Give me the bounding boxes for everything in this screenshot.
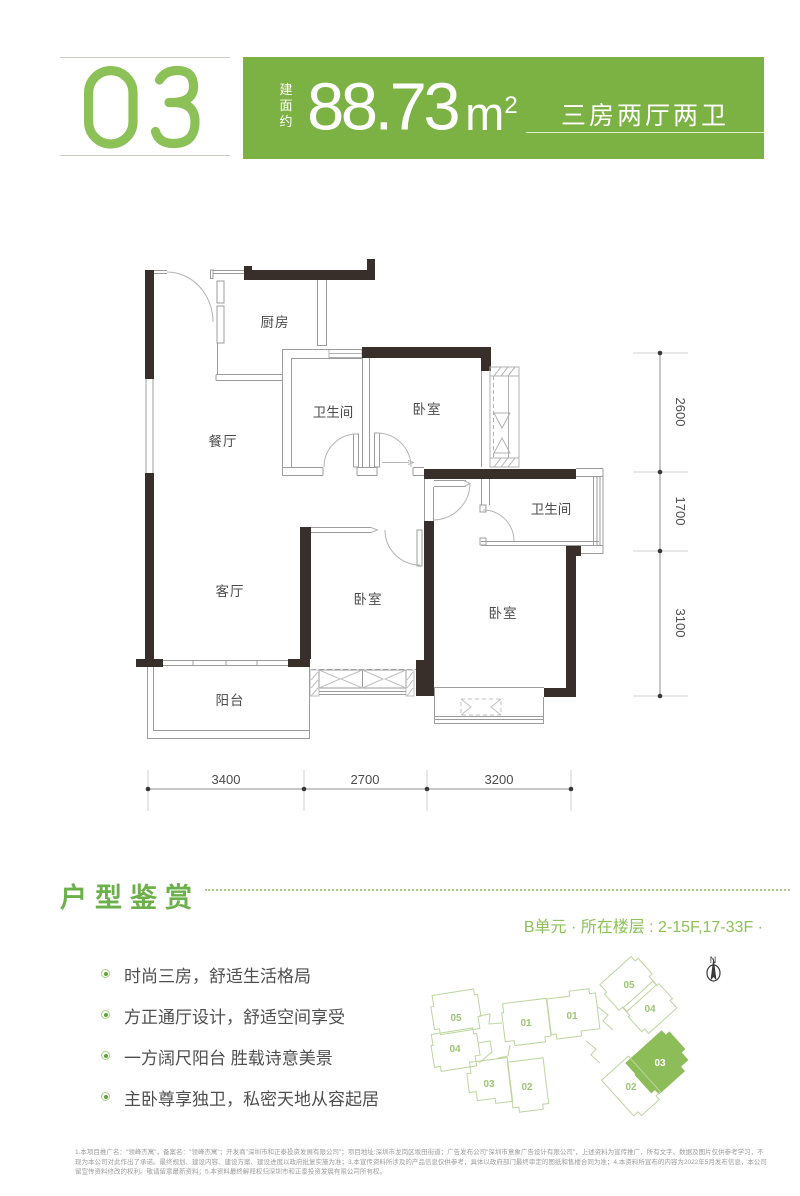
svg-text:3100: 3100 xyxy=(673,609,688,638)
svg-text:04: 04 xyxy=(644,1004,656,1015)
svg-text:卧室: 卧室 xyxy=(413,401,442,417)
svg-text:3200: 3200 xyxy=(485,772,514,787)
svg-text:02: 02 xyxy=(625,1082,637,1093)
svg-text:阳台: 阳台 xyxy=(216,693,245,708)
svg-text:03: 03 xyxy=(654,1058,666,1069)
svg-text:餐厅: 餐厅 xyxy=(209,434,238,449)
svg-text:卧室: 卧室 xyxy=(489,605,518,621)
svg-text:04: 04 xyxy=(449,1044,461,1055)
svg-text:1700: 1700 xyxy=(673,497,688,526)
svg-text:05: 05 xyxy=(623,980,635,991)
svg-text:厨房: 厨房 xyxy=(261,315,290,330)
svg-text:客厅: 客厅 xyxy=(216,583,245,599)
svg-text:01: 01 xyxy=(566,1011,578,1022)
svg-text:05: 05 xyxy=(450,1013,462,1024)
svg-text:3400: 3400 xyxy=(212,772,241,787)
svg-text:卧室: 卧室 xyxy=(354,591,383,607)
svg-text:02: 02 xyxy=(521,1082,533,1093)
svg-text:卫生间: 卫生间 xyxy=(313,405,354,420)
svg-text:卫生间: 卫生间 xyxy=(531,502,572,517)
svg-text:2700: 2700 xyxy=(351,772,380,787)
svg-text:2600: 2600 xyxy=(673,398,688,427)
svg-text:03: 03 xyxy=(483,1079,495,1090)
svg-text:01: 01 xyxy=(520,1018,532,1029)
